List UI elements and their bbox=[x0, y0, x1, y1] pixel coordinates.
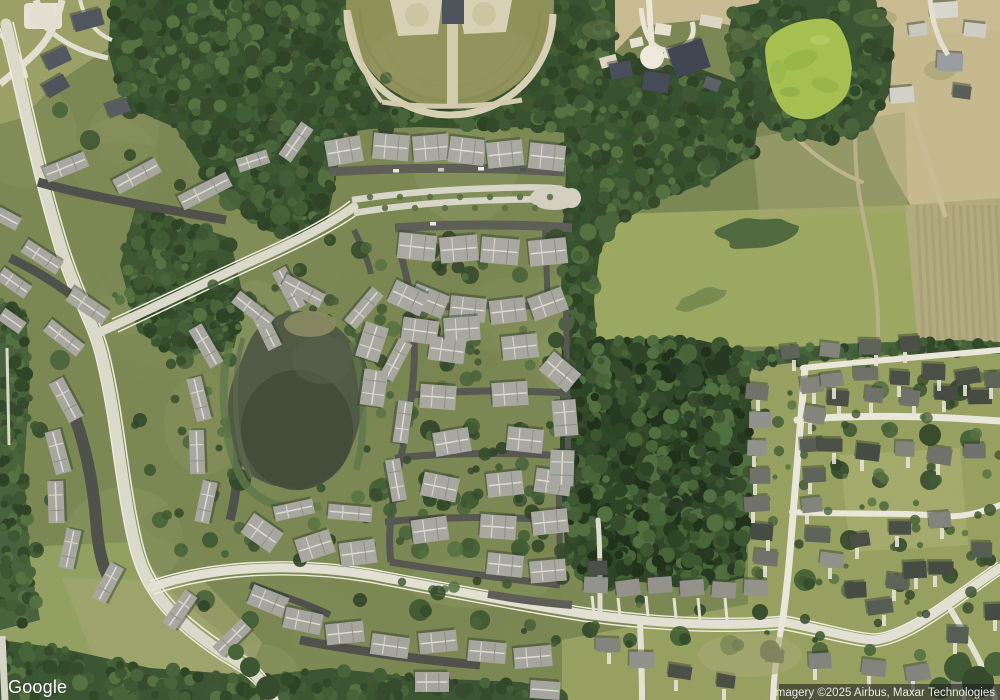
svg-text:Imagery ©2025 Airbus, Maxar Te: Imagery ©2025 Airbus, Maxar Technologies bbox=[773, 687, 996, 699]
svg-text:Google: Google bbox=[8, 677, 67, 697]
